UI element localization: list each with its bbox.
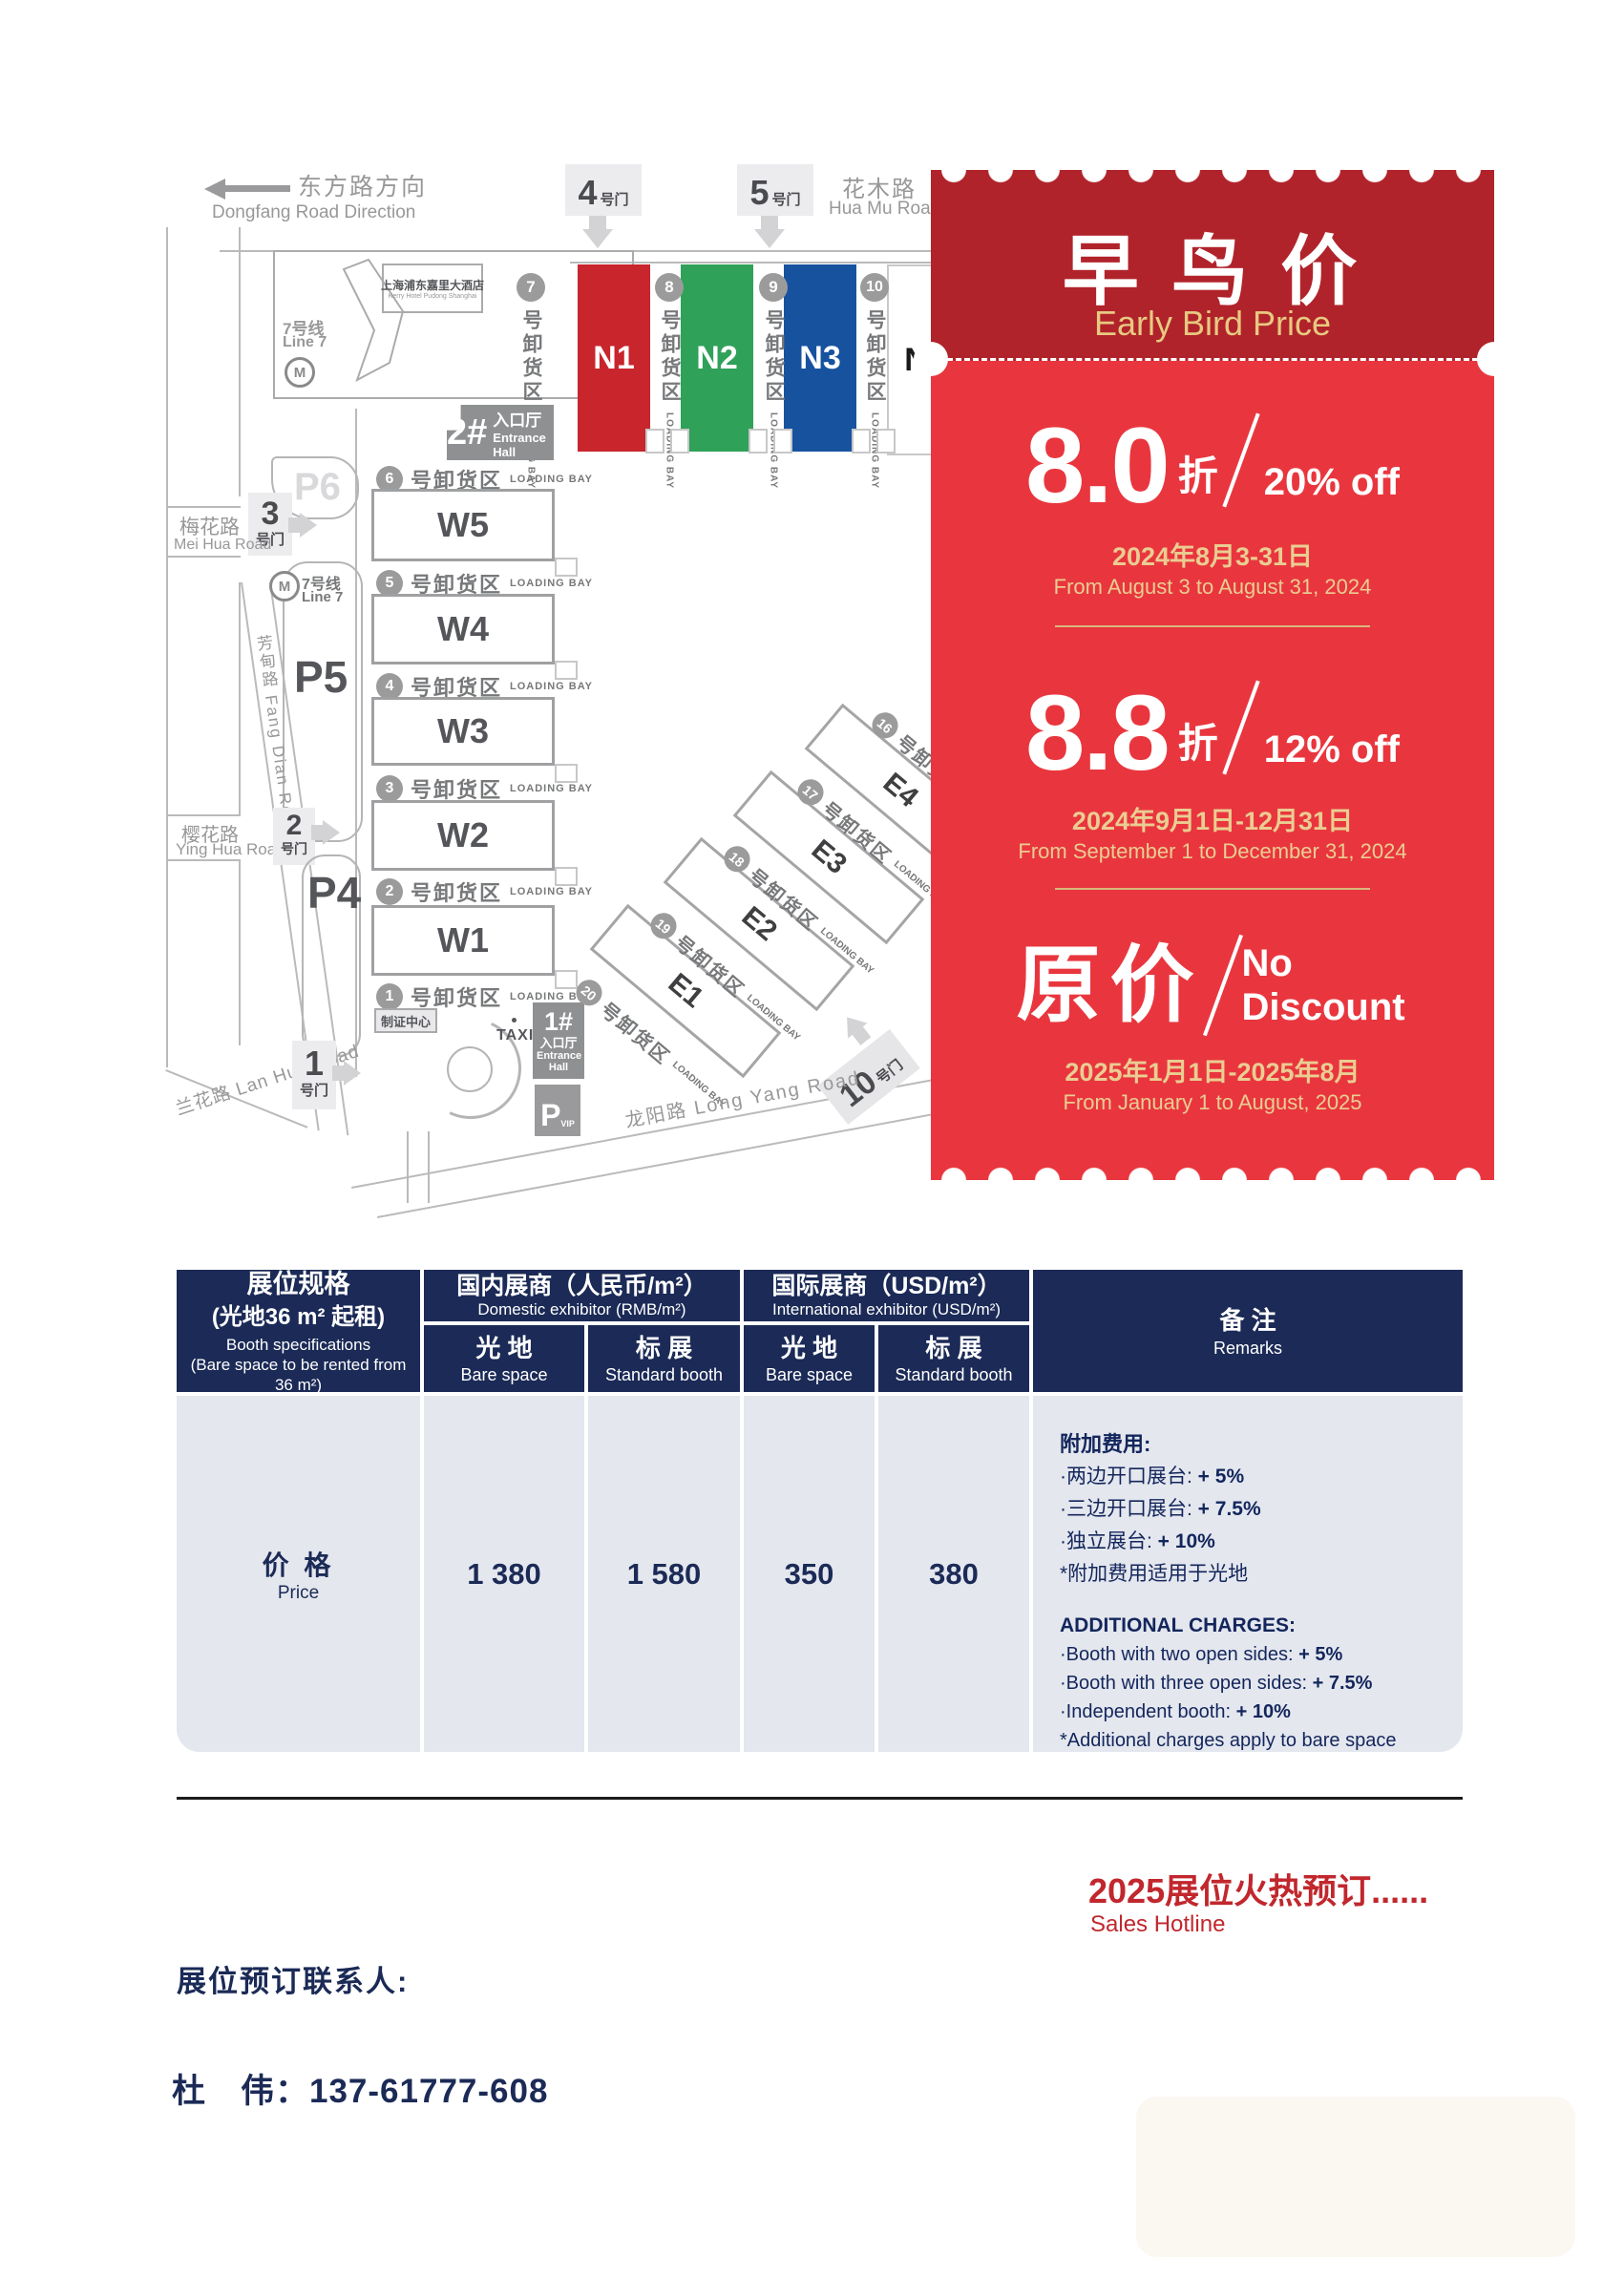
gate-1-arrow-icon xyxy=(332,1065,344,1081)
line7-2-label-en: Line 7 xyxy=(302,589,343,605)
road-line-south-1 xyxy=(407,1131,409,1203)
bay-7-circle: 7 xyxy=(517,273,545,302)
tier-2-zhe: 折 xyxy=(1178,711,1218,770)
tier-3-rate: 原价 xyxy=(1016,943,1203,1027)
dom-std-header: 标 展 Standard booth xyxy=(588,1325,740,1392)
entrance-1-en: Entrance Hall xyxy=(537,1050,580,1073)
gate-3-number: 3 xyxy=(262,497,280,530)
col-booth-spec-header: 展位规格 (光地36 m² 起租) Booth specifications (… xyxy=(177,1270,420,1392)
sales-promo-zh: 2025展位火热预订...... xyxy=(1088,1864,1428,1913)
gate-2-number: 2 xyxy=(286,812,303,840)
entrance-2-zh: 入口厅 xyxy=(493,407,541,431)
gate-1: 1 号门 xyxy=(292,1041,336,1109)
gold-separator-2 xyxy=(1055,888,1370,890)
hall-w4: W4 xyxy=(371,594,555,664)
meihua-road-label-en: Mei Hua Road xyxy=(174,537,271,554)
road-line-west-1 xyxy=(166,227,168,1067)
hall-n3: N3 xyxy=(784,264,856,452)
scallop-top xyxy=(931,170,1494,195)
bay-8-circle: 8 xyxy=(655,273,684,302)
gate-5-number: 5 xyxy=(749,176,769,210)
tier-2: 8.8 折 12% off xyxy=(931,678,1494,777)
price-dom-bare-cell: 1 380 xyxy=(424,1396,584,1752)
gate-2: 2 号门 xyxy=(273,808,315,865)
tier-1: 8.0 折 20% off xyxy=(931,411,1494,510)
road-line-south-2 xyxy=(428,1131,430,1203)
metro-icon-2: M xyxy=(269,571,300,601)
tier-2-slash xyxy=(1222,680,1259,774)
contact-label: 展位预订联系人: xyxy=(177,1957,409,2000)
parking-p6-label: P6 xyxy=(294,466,341,509)
gate-5-suffix: 号门 xyxy=(772,190,801,210)
block-line-meihua-bottom xyxy=(166,556,241,558)
taxi-dot xyxy=(512,1018,517,1023)
gate-3-arrow-icon xyxy=(288,517,300,533)
contact-phone: 杜 伟：137-61777-608 xyxy=(172,2064,548,2113)
panel-title-en: Early Bird Price xyxy=(931,304,1494,344)
tier-3-off: No Discount xyxy=(1242,941,1409,1029)
entrance-hall-2-badge: 2# 入口厅 Entrance Hall xyxy=(447,405,554,460)
hall-w2: W2 xyxy=(371,800,555,871)
loading-bay-9: 9 号卸货区 LOADING BAY xyxy=(756,273,791,489)
ticket-notch-right xyxy=(1477,342,1511,376)
pricing-table: 展位规格 (光地36 m² 起租) Booth specifications (… xyxy=(177,1270,1463,1752)
road-line-west-2b xyxy=(239,582,241,814)
sales-hotline-label: Sales Hotline xyxy=(1090,1911,1225,1938)
intl-group-header: 国际展商（USD/m²） International exhibitor (US… xyxy=(744,1270,1029,1321)
block-line-yinghua-top xyxy=(166,814,241,816)
footer-divider xyxy=(177,1797,1463,1800)
gate-2-arrow-icon xyxy=(311,825,323,840)
parking-p4-label: P4 xyxy=(307,867,361,918)
gold-separator-1 xyxy=(1055,625,1370,627)
metro-icon: M xyxy=(285,357,315,388)
entrance-1-number: 1# xyxy=(544,1008,573,1037)
dock xyxy=(645,429,664,453)
dock xyxy=(555,558,578,577)
entrance-1-zh: 入口厅 xyxy=(539,1037,577,1050)
remarks-cell: 附加费用: ·两边开口展台: + 5% ·三边开口展台: + 7.5% ·独立展… xyxy=(1033,1396,1463,1752)
hotel-name-zh: 上海浦东嘉里大酒店 xyxy=(381,277,484,293)
block-line-meihua-top xyxy=(166,506,241,508)
tier-3-slash xyxy=(1202,935,1242,1037)
dock xyxy=(876,429,896,453)
dom-bare-header: 光 地 Bare space xyxy=(424,1325,584,1392)
hall-w5: W5 xyxy=(371,489,555,561)
hall-w1: W1 xyxy=(371,905,555,976)
dock xyxy=(773,429,792,453)
hall-n1: N1 xyxy=(578,264,650,452)
remarks-header: 备 注 Remarks xyxy=(1033,1270,1463,1392)
tier-1-zhe: 折 xyxy=(1178,444,1218,502)
dongfang-road-label-en: Dongfang Road Direction xyxy=(212,202,415,223)
price-intl-std-cell: 380 xyxy=(878,1396,1029,1752)
bay-9-circle: 9 xyxy=(759,273,788,302)
gate-4-number: 4 xyxy=(578,176,597,210)
dock xyxy=(670,429,689,453)
entrance-hall-1-badge: 1# 入口厅 Entrance Hall xyxy=(533,1002,584,1079)
gate-4-suffix: 号门 xyxy=(601,190,629,210)
gate-1-number: 1 xyxy=(305,1046,324,1081)
tier-3-dates: 2025年1月1日-2025年8月 From January 1 to Augu… xyxy=(931,1056,1494,1117)
dock xyxy=(555,867,578,886)
west-arrow-icon xyxy=(204,178,292,199)
parking-p5-label: P5 xyxy=(294,651,348,703)
vip-parking-badge: P VIP xyxy=(535,1085,580,1136)
tier-2-dates: 2024年9月1日-12月31日 From September 1 to Dec… xyxy=(931,805,1494,866)
hotel-label-box: 上海浦东嘉里大酒店 Kerry Hotel Pudong Shanghai xyxy=(382,264,483,313)
road-line-west-2c xyxy=(239,859,241,1045)
dock xyxy=(555,970,578,989)
tier-1-rate: 8.0 xyxy=(1025,422,1169,510)
dock xyxy=(852,429,871,453)
dongfang-road-label-zh: 东方路方向 xyxy=(298,168,427,202)
zhizheng-badge: 制证中心 xyxy=(374,1008,437,1033)
tier-1-slash xyxy=(1222,412,1259,507)
gate-5: 5号门 xyxy=(737,164,813,216)
intl-bare-header: 光 地 Bare space xyxy=(744,1325,875,1392)
intl-std-header: 标 展 Standard booth xyxy=(878,1325,1029,1392)
block-line-yinghua-bottom xyxy=(166,859,241,861)
tier-3: 原价 No Discount xyxy=(931,932,1494,1039)
loading-bay-8: 8 号卸货区 LOADING BAY xyxy=(652,273,686,489)
dock xyxy=(555,661,578,680)
footer-watermark xyxy=(1136,2097,1575,2257)
hall-w3: W3 xyxy=(371,697,555,766)
price-dom-std-cell: 1 580 xyxy=(588,1396,740,1752)
dock xyxy=(555,764,578,783)
hotel-name-en: Kerry Hotel Pudong Shanghai xyxy=(389,293,477,300)
tier-2-rate: 8.8 xyxy=(1025,689,1169,777)
tier-2-off: 12% off xyxy=(1264,728,1400,771)
gate-4-arrow-icon xyxy=(589,216,606,229)
early-bird-panel: 早 鸟 价 Early Bird Price 8.0 折 20% off 202… xyxy=(931,170,1494,1180)
hall-n2: N2 xyxy=(681,264,753,452)
tier-1-dates: 2024年8月3-31日 From August 3 to August 31,… xyxy=(931,540,1494,601)
gate-4: 4号门 xyxy=(565,164,642,216)
line7-label-en: Line 7 xyxy=(283,334,327,351)
ticket-notch-left xyxy=(914,342,948,376)
vip-parking-sub: VIP xyxy=(560,1119,575,1128)
scallop-bottom xyxy=(931,1155,1494,1180)
road-line-west-2a xyxy=(239,227,241,496)
ticket-dashed-line xyxy=(939,358,1487,361)
entrance-2-en: Entrance Hall xyxy=(493,431,554,459)
gate-1-suffix: 号门 xyxy=(300,1081,328,1101)
loading-bay-10: 10 号卸货区 LOADING BAY xyxy=(857,273,892,489)
domestic-group-header: 国内展商（人民币/m²） Domestic exhibitor (RMB/m²) xyxy=(424,1270,740,1321)
bay-10-circle: 10 xyxy=(860,273,889,302)
roundabout-inner-circle xyxy=(447,1046,493,1092)
entrance-2-number: 2# xyxy=(447,414,487,451)
huamu-road-label-en: Hua Mu Road xyxy=(829,199,940,220)
yinghua-road-label-en: Ying Hua Road xyxy=(176,840,285,859)
price-label-cell: 价 格 Price xyxy=(177,1396,420,1752)
price-intl-bare-cell: 350 xyxy=(744,1396,875,1752)
taxi-label: TAXI xyxy=(496,1027,534,1044)
vip-parking-p: P xyxy=(540,1104,560,1128)
gate-2-suffix: 号门 xyxy=(281,840,307,859)
dock xyxy=(749,429,768,453)
tier-1-off: 20% off xyxy=(1264,461,1400,504)
gate-5-arrow-icon xyxy=(761,216,778,229)
